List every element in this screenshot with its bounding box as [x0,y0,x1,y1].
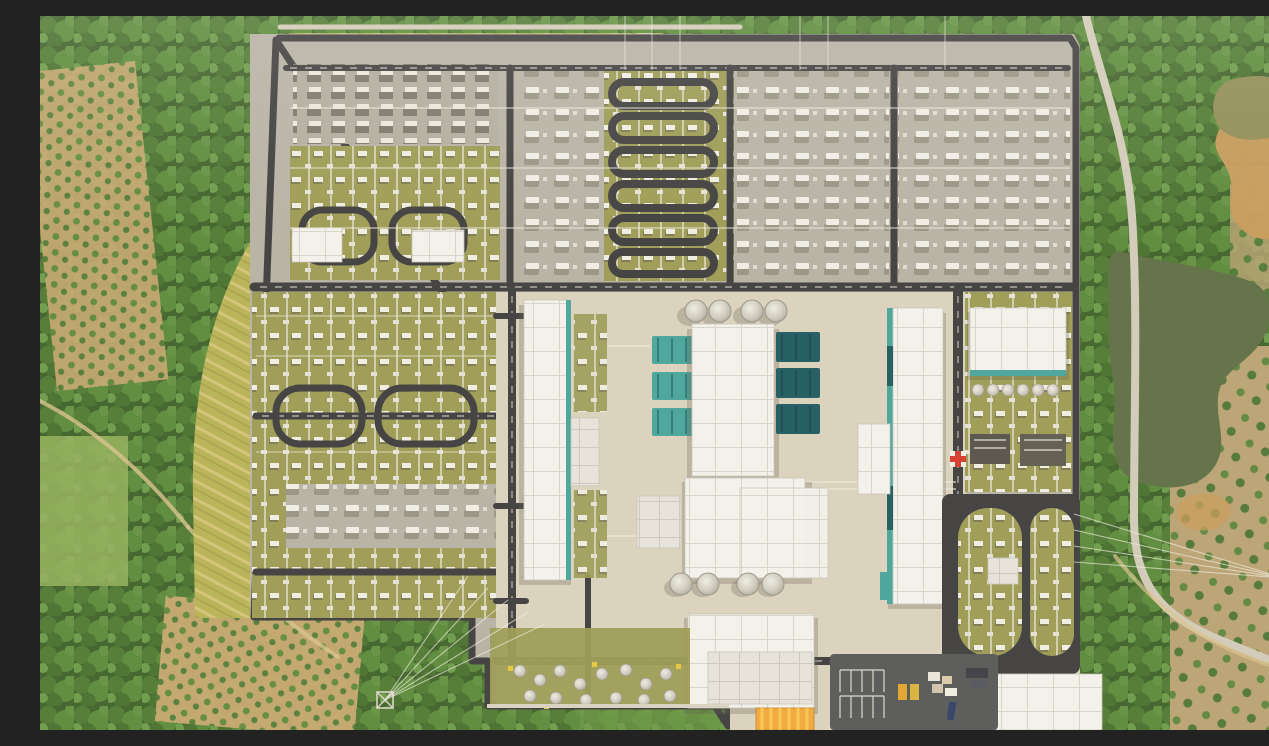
photo-canvas [40,16,1269,730]
aerial-photo [40,16,1269,730]
warm-tint [40,16,1269,730]
